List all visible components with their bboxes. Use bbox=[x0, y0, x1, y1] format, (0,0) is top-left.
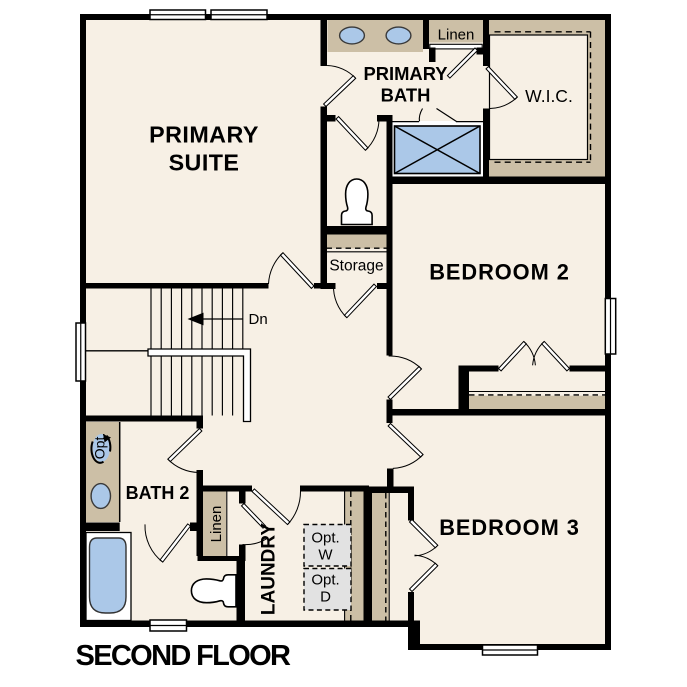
svg-text:SECOND FLOOR: SECOND FLOOR bbox=[76, 640, 292, 672]
svg-text:BATH 2: BATH 2 bbox=[126, 483, 190, 503]
svg-text:Opt.: Opt. bbox=[311, 530, 339, 547]
svg-text:BATH: BATH bbox=[381, 85, 431, 106]
svg-text:Dn: Dn bbox=[249, 311, 268, 328]
svg-text:Linen: Linen bbox=[438, 27, 475, 44]
svg-text:Storage: Storage bbox=[329, 258, 383, 275]
svg-text:Opt.: Opt. bbox=[92, 433, 108, 459]
svg-text:Opt.: Opt. bbox=[311, 572, 339, 589]
svg-text:W.I.C.: W.I.C. bbox=[525, 86, 573, 106]
svg-text:PRIMARY: PRIMARY bbox=[149, 122, 259, 148]
svg-text:BEDROOM 2: BEDROOM 2 bbox=[429, 260, 570, 285]
svg-text:Linen: Linen bbox=[208, 506, 225, 543]
svg-text:D: D bbox=[320, 589, 331, 606]
svg-text:BEDROOM 3: BEDROOM 3 bbox=[439, 515, 580, 540]
svg-text:W: W bbox=[318, 547, 333, 564]
svg-text:LAUNDRY: LAUNDRY bbox=[259, 523, 280, 616]
svg-text:PRIMARY: PRIMARY bbox=[363, 63, 447, 84]
svg-text:SUITE: SUITE bbox=[169, 150, 240, 176]
